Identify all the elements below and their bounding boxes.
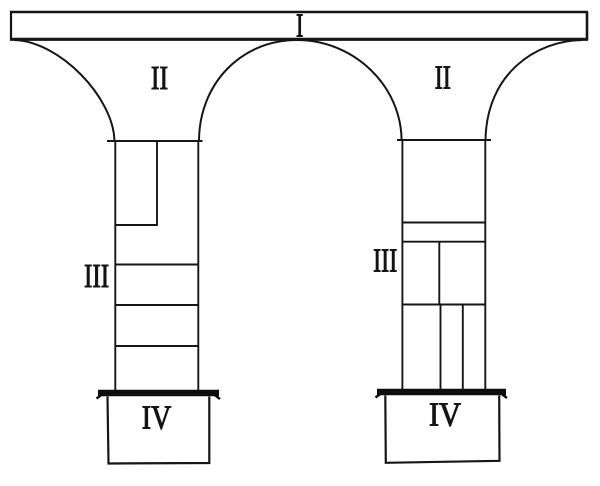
svg-text:II: II	[151, 59, 168, 97]
svg-text:III: III	[373, 243, 397, 280]
svg-text:IV: IV	[142, 398, 172, 436]
svg-text:IV: IV	[429, 395, 461, 433]
svg-text:III: III	[84, 257, 109, 295]
svg-text:I: I	[296, 7, 303, 45]
svg-text:II: II	[435, 60, 451, 97]
